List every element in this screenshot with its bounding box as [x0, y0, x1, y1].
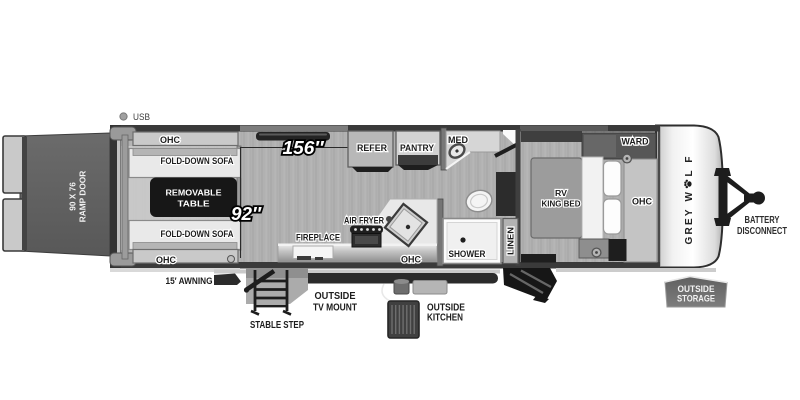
svg-text:FOLD-DOWN SOFA: FOLD-DOWN SOFA	[161, 229, 235, 239]
svg-text:OUTSIDE: OUTSIDE	[315, 290, 356, 302]
svg-text:WARD: WARD	[622, 137, 649, 147]
svg-text:DISCONNECT: DISCONNECT	[737, 226, 787, 237]
svg-text:STABLE STEP: STABLE STEP	[250, 319, 304, 331]
svg-text:GREY: GREY	[684, 208, 695, 245]
svg-text:TABLE: TABLE	[178, 199, 210, 209]
svg-text:W: W	[684, 192, 695, 202]
svg-text:92″: 92″	[231, 203, 262, 224]
svg-text:LINEN: LINEN	[507, 227, 516, 255]
svg-text:RV: RV	[555, 188, 567, 198]
svg-text:15′ AWNING: 15′ AWNING	[166, 276, 213, 286]
svg-text:TV MOUNT: TV MOUNT	[313, 302, 357, 314]
svg-text:REMOVABLE: REMOVABLE	[166, 188, 222, 198]
svg-text:BATTERY: BATTERY	[745, 215, 780, 226]
svg-text:REFER: REFER	[357, 143, 387, 153]
svg-text:STORAGE: STORAGE	[677, 294, 715, 304]
svg-text:USB: USB	[133, 112, 150, 122]
svg-text:SHOWER: SHOWER	[449, 249, 486, 259]
svg-text:OHC: OHC	[401, 255, 422, 265]
svg-text:KING BED: KING BED	[542, 199, 581, 209]
svg-text:OHC: OHC	[632, 197, 653, 207]
svg-text:FOLD-DOWN SOFA: FOLD-DOWN SOFA	[161, 156, 235, 166]
svg-text:KITCHEN: KITCHEN	[427, 312, 463, 324]
svg-text:156″: 156″	[283, 137, 325, 158]
svg-text:OHC: OHC	[156, 255, 177, 265]
svg-text:AIR FRYER: AIR FRYER	[344, 216, 384, 226]
svg-text:PANTRY: PANTRY	[400, 143, 435, 153]
svg-text:OUTSIDE: OUTSIDE	[678, 284, 715, 294]
svg-text:FIREPLACE: FIREPLACE	[296, 233, 340, 243]
svg-text:OHC: OHC	[160, 135, 181, 145]
